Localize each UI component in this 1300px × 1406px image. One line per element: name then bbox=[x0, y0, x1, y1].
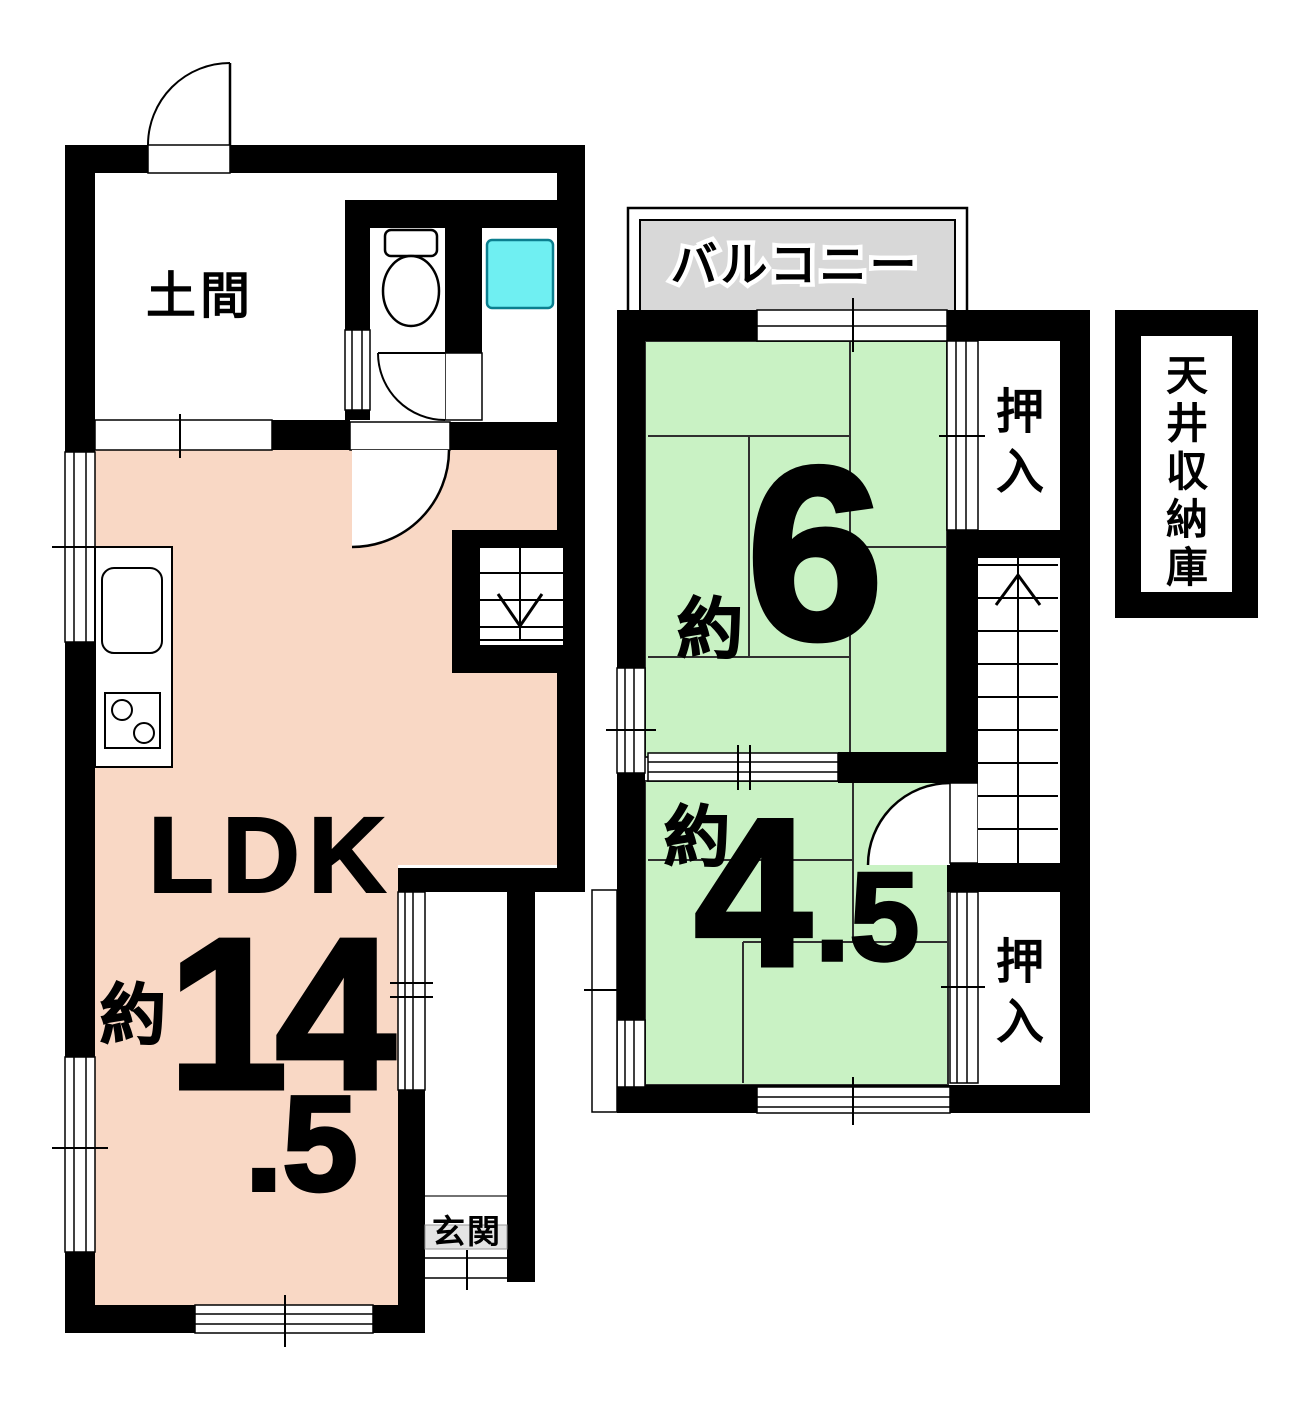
second-floor-plan: バルコニー 約 6 約 4 .5 押入 押入 bbox=[584, 208, 1090, 1125]
room45-size-value: 4 bbox=[695, 775, 812, 1010]
wall-segment bbox=[398, 1090, 425, 1333]
wall-segment bbox=[947, 863, 1090, 892]
doma-label: 土間 bbox=[146, 268, 254, 324]
ceiling-storage-label: 天井収納庫 bbox=[1166, 352, 1208, 591]
ceiling-storage-box: 天井収納庫 bbox=[1115, 310, 1258, 618]
stairs-second-floor bbox=[978, 558, 1058, 863]
wall-segment bbox=[947, 558, 978, 783]
washroom-doorway bbox=[350, 422, 450, 450]
window-left-room45 bbox=[617, 1020, 645, 1087]
wall-segment bbox=[452, 645, 585, 673]
wall-segment bbox=[838, 752, 950, 783]
floorplan-drawing: 土間 LDK 約 14 .5 玄関 bbox=[0, 0, 1300, 1406]
wall-segment bbox=[65, 145, 585, 173]
entrance-door-icon bbox=[148, 63, 230, 173]
wall-segment bbox=[445, 228, 482, 353]
kitchen-counter bbox=[95, 547, 172, 767]
room6-size-value: 6 bbox=[747, 416, 883, 690]
bathtub-icon bbox=[487, 240, 553, 308]
wall-segment bbox=[507, 892, 535, 1282]
floorplan-page: 土間 LDK 約 14 .5 玄関 bbox=[0, 0, 1300, 1406]
toilet-door-icon bbox=[378, 353, 445, 420]
toilet-window bbox=[345, 330, 370, 410]
room45-size-decimal: .5 bbox=[815, 848, 919, 987]
toilet-washroom-opening bbox=[445, 353, 482, 420]
wall-segment bbox=[1060, 310, 1090, 1113]
wall-segment bbox=[350, 200, 585, 228]
closet-upper-label: 押入 bbox=[996, 386, 1044, 499]
closet-lower-label: 押入 bbox=[996, 936, 1044, 1049]
stove-icon bbox=[105, 693, 160, 748]
first-floor-plan: 土間 LDK 約 14 .5 玄関 bbox=[52, 63, 585, 1347]
ldk-approx: 約 bbox=[100, 978, 166, 1052]
wall-segment bbox=[272, 420, 350, 450]
toilet-icon bbox=[383, 230, 439, 326]
ldk-size-decimal: .5 bbox=[245, 1068, 358, 1219]
wall-segment bbox=[398, 868, 585, 892]
stairs-first-floor bbox=[480, 548, 563, 645]
genkan-label: 玄関 bbox=[432, 1213, 502, 1250]
balcony-label: バルコニー bbox=[670, 238, 919, 291]
wall-segment bbox=[557, 145, 585, 892]
kitchen-sink-icon bbox=[102, 568, 162, 653]
wall-segment bbox=[947, 530, 1090, 558]
wall-segment bbox=[450, 422, 567, 450]
room6-approx: 約 bbox=[677, 592, 743, 666]
